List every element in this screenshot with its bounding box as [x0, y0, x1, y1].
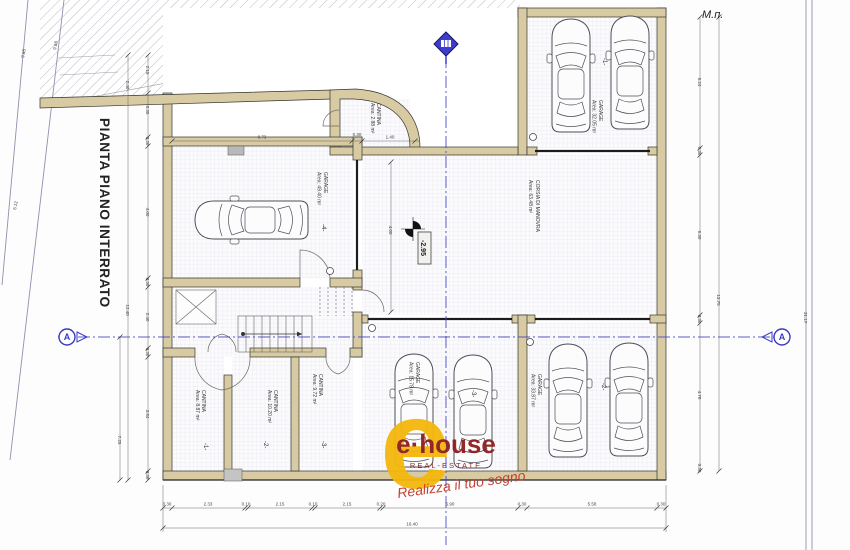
- dim-label: 9.65: [20, 48, 27, 58]
- car-garage2-a: [544, 344, 592, 457]
- dim-label: 7.25: [117, 436, 122, 445]
- corner-note: М.п.: [702, 9, 723, 21]
- dim-label: 6.24: [697, 78, 702, 87]
- level-value: -2.95: [419, 240, 426, 256]
- dim-label: 0.35: [145, 106, 150, 115]
- room-area: Area: 33.87 m²: [530, 374, 536, 407]
- corsia-floor: [362, 155, 657, 315]
- dim-label: 12.40: [125, 304, 130, 316]
- dim-label: 0.10: [309, 502, 318, 507]
- dim-label: 0.30: [145, 471, 150, 480]
- dim-label: 5.58: [588, 502, 597, 507]
- room-name: CORSIA DI MANOVRA: [534, 180, 540, 233]
- room-area: Area: 10.20 m²: [266, 390, 272, 423]
- unit-marker: -1-: [202, 443, 208, 450]
- cantina2-floor: [232, 357, 291, 471]
- dim-label: 4.00: [388, 226, 393, 235]
- elevator-shaft: [176, 290, 216, 324]
- unit-marker: -3-: [470, 390, 476, 397]
- logo-tagline: REAL-ESTATE: [410, 461, 482, 470]
- dim-label: 2.33: [204, 502, 213, 507]
- dim-label: 1.40: [386, 135, 395, 140]
- section-letter: A: [779, 332, 786, 342]
- room-area: Area: 63.48 m²: [527, 180, 533, 213]
- dim-label: 16.40: [406, 522, 418, 527]
- dim-label: 2.15: [276, 502, 285, 507]
- cantina3-floor: [299, 357, 353, 471]
- car-garage1-b: [606, 16, 654, 129]
- dim-label: 2.40: [145, 313, 150, 322]
- dim-label: 2.15: [145, 66, 150, 75]
- dim-label: 0.30: [657, 502, 666, 507]
- page-title: PIANTA PIANO INTERRATO: [97, 118, 112, 308]
- dim-label: 0.30: [518, 502, 527, 507]
- dim-label: 4.78: [697, 391, 702, 400]
- dim-label: 0.30: [353, 132, 362, 137]
- dim-label: 6.30: [697, 231, 702, 240]
- room-area: Area: 2.88 m²: [369, 103, 375, 134]
- drawing-title: PIANTA PIANO INTERRATO: [97, 118, 112, 308]
- dim-label: 0.30: [697, 464, 702, 473]
- dim-label: 3.84: [145, 410, 150, 419]
- car-garage4: [195, 196, 308, 244]
- logo-wordmark: e·house: [396, 429, 496, 459]
- car-garage2-b: [605, 343, 653, 456]
- wall-pillar: [224, 469, 242, 481]
- dim-label: 0.30: [163, 502, 172, 507]
- room-name: GARAGE: [322, 172, 328, 194]
- section-letter: A: [64, 332, 71, 342]
- car-garage1-a: [547, 19, 595, 132]
- unit-marker: -3-: [320, 441, 326, 448]
- room-name: GARAGE: [536, 374, 542, 396]
- dim-label: 0.30: [145, 348, 150, 357]
- floor-plan-svg: 9.65 9.68 5.12 31.17: [0, 0, 850, 550]
- dim-label: 4.00: [145, 208, 150, 217]
- dim-label: 8.73: [258, 135, 267, 140]
- vent-window: [228, 146, 244, 155]
- room-area: Area: 32.05 m²: [591, 100, 597, 133]
- dim-label: 2.15: [343, 502, 352, 507]
- dim-label: 31.17: [803, 312, 808, 324]
- floor-plan-page: 9.65 9.68 5.12 31.17: [0, 0, 850, 550]
- room-name: GARAGE: [597, 100, 603, 122]
- room-area: Area: 8.87 m²: [194, 390, 200, 421]
- level-marker: -2.95: [418, 232, 431, 264]
- unit-marker: -1-: [601, 58, 607, 65]
- unit-marker: -2-: [262, 441, 268, 448]
- dim-label: 0.30: [697, 147, 702, 156]
- unit-marker: -2-: [600, 383, 606, 390]
- unit-marker: -4-: [320, 224, 326, 231]
- dim-label: 0.30: [697, 315, 702, 324]
- dim-label: 0.30: [145, 137, 150, 146]
- dim-label: 13.75: [716, 294, 721, 306]
- dim-label: 5.12: [12, 200, 19, 210]
- room-area: Area: 49.40 m²: [316, 172, 322, 205]
- room-area: Area: 9.72 m²: [311, 374, 317, 405]
- dim-label: 0.10: [242, 502, 251, 507]
- dim-label: 2.40: [125, 81, 130, 90]
- dim-label: 0.30: [145, 278, 150, 287]
